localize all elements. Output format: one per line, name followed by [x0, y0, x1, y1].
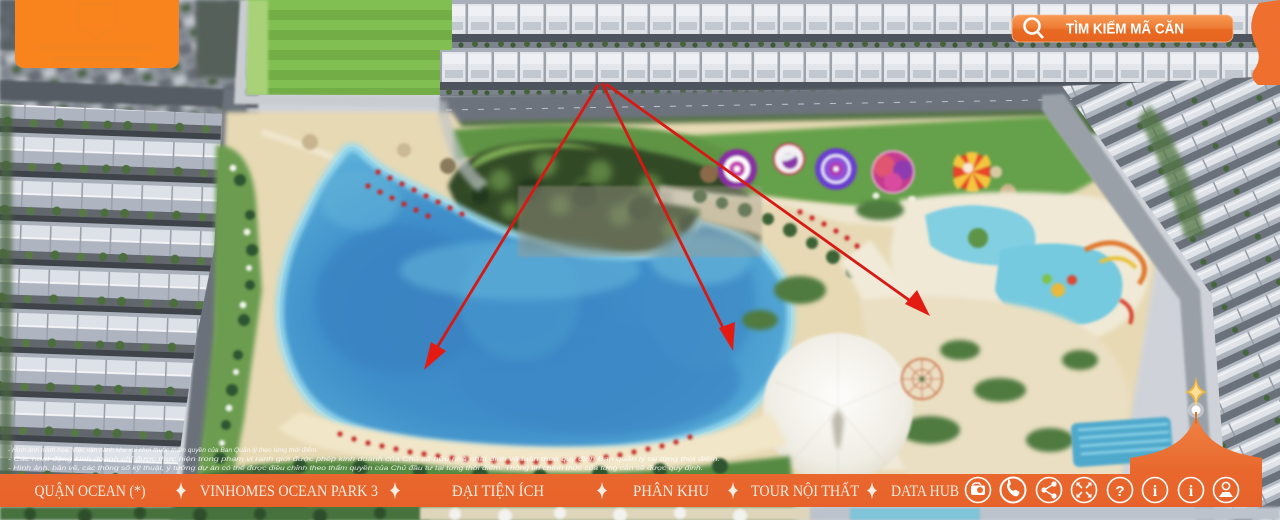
svg-text:VINHOMES OCEAN PARK 3: VINHOMES OCEAN PARK 3 [200, 483, 378, 500]
svg-text:DATA HUB: DATA HUB [891, 483, 959, 500]
svg-text:PHÂN KHU: PHÂN KHU [633, 481, 709, 500]
svg-text:TÌM KIẾM MÃ CĂN: TÌM KIẾM MÃ CĂN [1066, 20, 1184, 38]
svg-text:TOUR NỘI THẤT: TOUR NỘI THẤT [751, 481, 859, 500]
svg-text:ĐẠI TIỆN ÍCH: ĐẠI TIỆN ÍCH [452, 481, 544, 500]
svg-text:- Hình ảnh, bản vẽ, các thông: - Hình ảnh, bản vẽ, các thông số kỹ thuậ… [8, 463, 703, 472]
svg-text:QUẬN OCEAN (*): QUẬN OCEAN (*) [35, 481, 146, 500]
svg-text:i: i [1189, 483, 1194, 500]
svg-text:- Các hoạt động kinh doanh chỉ: - Các hoạt động kinh doanh chỉ được thực… [8, 455, 720, 463]
svg-text:i: i [1153, 483, 1158, 500]
svg-text:- Hình ảnh minh họa. Việc vận: - Hình ảnh minh họa. Việc vận hành khu v… [8, 445, 318, 454]
svg-text:?: ? [1115, 483, 1124, 500]
